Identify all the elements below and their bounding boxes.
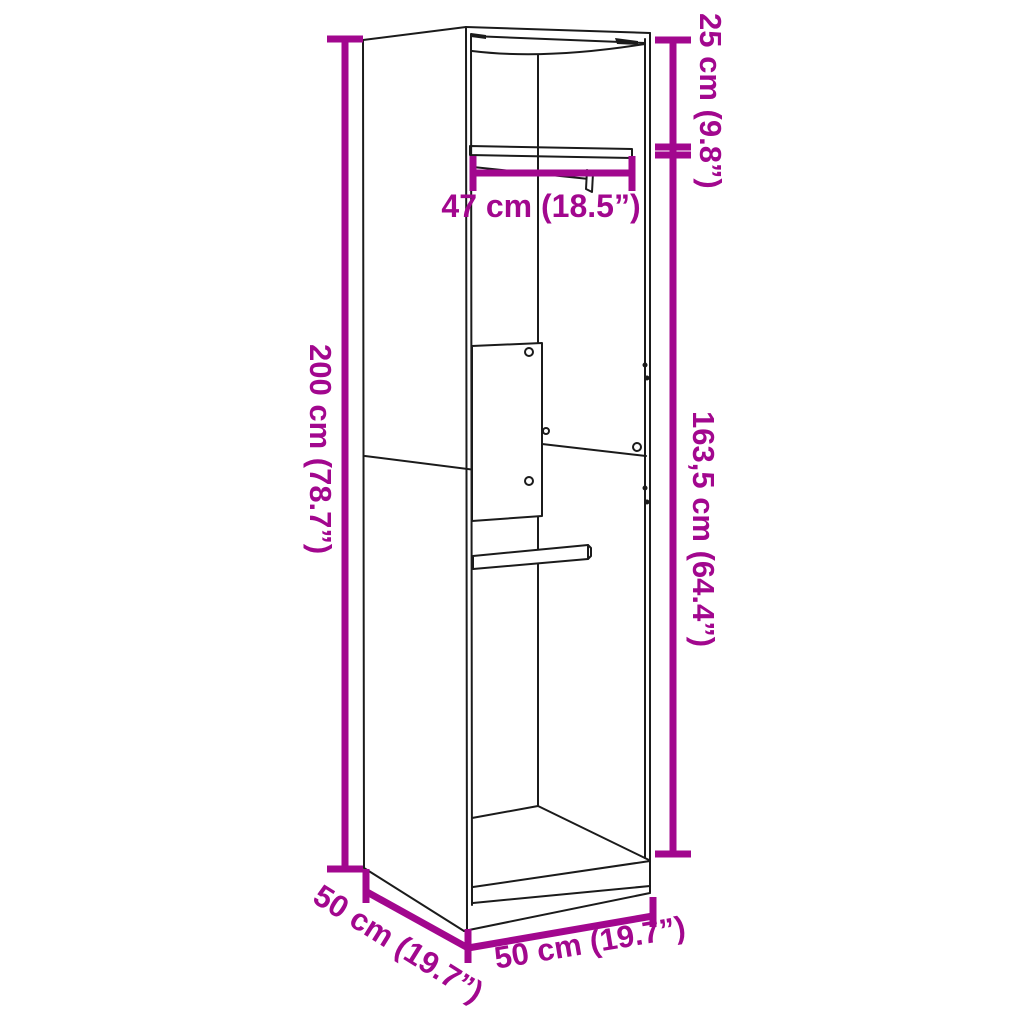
shelf-width-dimension-label: 47 cm (18.5”) [441,190,641,224]
top-shadow-dash-right [615,38,638,45]
hanging-space-dimension-label: 163,5 cm (64.4”) [683,411,719,647]
screw-hole [543,428,549,434]
pin-hole [644,364,647,367]
upper-shelf [470,146,632,158]
floor-back-edges [472,806,649,860]
wardrobe-diagram [0,0,1024,1024]
top-front-edge [466,27,650,33]
shelf-width-dimension-line [473,156,632,191]
diagram-canvas: 200 cm (78.7”) 25 cm (9.8”) 163,5 cm (64… [0,0,1024,1024]
back-mounting-plate [472,343,542,521]
height-dimension-label: 200 cm (78.7”) [300,344,336,554]
pin-hole [646,501,649,504]
screw-hole [633,443,641,451]
top-panel-back-underside [472,44,645,54]
back-panel-seam [542,444,646,456]
front-left-stile-outer [466,27,467,931]
floor-front-edge [473,861,650,887]
top-shadow-dash-left [471,33,486,39]
wardrobe-line-art [363,27,650,931]
pin-hole [646,377,649,380]
plinth-seam [473,886,650,903]
lower-rail [473,545,591,569]
top-left-edge [363,27,466,40]
pin-hole [644,487,647,490]
left-back-edge [363,40,364,868]
top-compartment-dimension-label: 25 cm (9.8”) [688,13,726,189]
